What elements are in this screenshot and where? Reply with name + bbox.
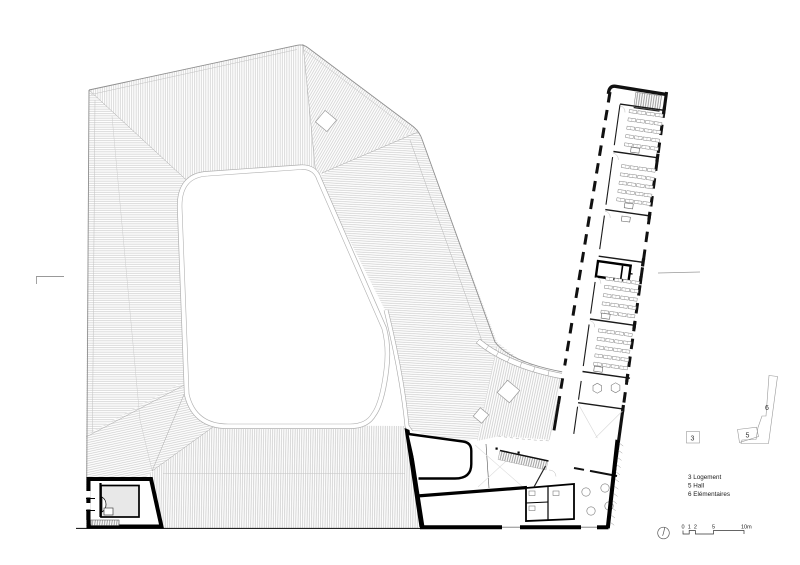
svg-text:3 Logement: 3 Logement: [688, 474, 722, 481]
svg-text:10m: 10m: [741, 525, 752, 531]
svg-text:1: 1: [688, 525, 691, 531]
svg-text:5 Hall: 5 Hall: [688, 483, 704, 490]
svg-text:5: 5: [746, 433, 750, 440]
svg-text:0: 0: [682, 525, 685, 531]
svg-text:2: 2: [694, 525, 697, 531]
svg-text:5: 5: [712, 525, 715, 531]
svg-text:3: 3: [691, 436, 695, 443]
svg-text:6 Elémentaires: 6 Elémentaires: [688, 491, 730, 498]
svg-text:6: 6: [765, 405, 769, 412]
